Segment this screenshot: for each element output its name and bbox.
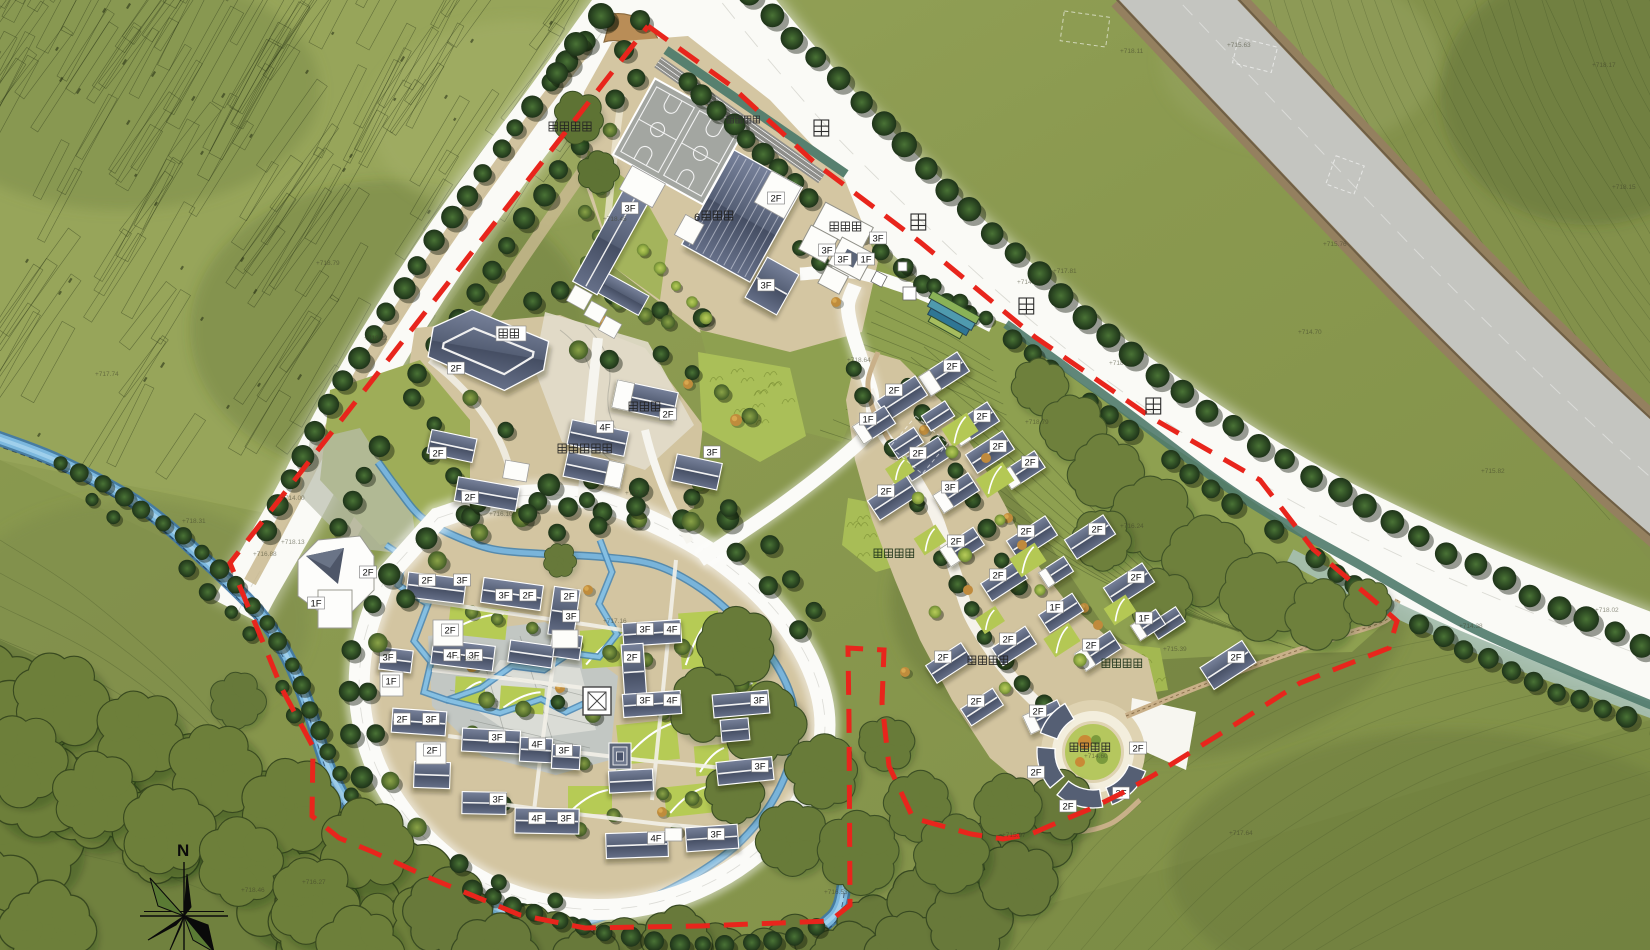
svg-text:+715.76: +715.76 xyxy=(1323,241,1347,248)
svg-text:2F: 2F xyxy=(937,652,948,663)
svg-text:2F: 2F xyxy=(396,714,407,725)
svg-text:2F: 2F xyxy=(464,492,475,503)
svg-text:3F: 3F xyxy=(944,482,955,493)
svg-text:2F: 2F xyxy=(976,411,987,422)
svg-text:+718.79: +718.79 xyxy=(1025,419,1049,426)
svg-text:2F: 2F xyxy=(362,567,373,578)
svg-text:4F: 4F xyxy=(531,813,542,824)
svg-text:+718.17: +718.17 xyxy=(1592,62,1616,69)
svg-text:+717.81: +717.81 xyxy=(1053,268,1077,275)
svg-text:2F: 2F xyxy=(1030,767,1041,778)
svg-text:2F: 2F xyxy=(880,486,891,497)
svg-text:3F: 3F xyxy=(565,611,576,622)
svg-text:+718.11: +718.11 xyxy=(1120,48,1144,55)
svg-text:4F: 4F xyxy=(666,624,677,635)
svg-text:+717.74: +717.74 xyxy=(95,371,119,378)
svg-text:2F: 2F xyxy=(563,591,574,602)
svg-text:2F: 2F xyxy=(450,363,461,374)
svg-text:2F: 2F xyxy=(522,590,533,601)
svg-text:+714.70: +714.70 xyxy=(1298,329,1322,336)
svg-text:2F: 2F xyxy=(432,448,443,459)
svg-text:2F: 2F xyxy=(946,361,957,372)
svg-text:+716.21: +716.21 xyxy=(456,655,480,662)
svg-text:2F: 2F xyxy=(912,448,923,459)
svg-text:4F: 4F xyxy=(666,695,677,706)
svg-text:3F: 3F xyxy=(760,280,771,291)
svg-text:2F: 2F xyxy=(1062,801,1073,812)
svg-text:+718.64: +718.64 xyxy=(847,357,871,364)
svg-text:3F: 3F xyxy=(753,695,764,706)
svg-text:2F: 2F xyxy=(1091,524,1102,535)
svg-text:3F: 3F xyxy=(558,745,569,756)
svg-text:1F: 1F xyxy=(310,598,321,609)
svg-text:+718.02: +718.02 xyxy=(1595,607,1619,614)
svg-text:2F: 2F xyxy=(1230,652,1241,663)
svg-text:+718.22: +718.22 xyxy=(364,335,388,342)
svg-text:N: N xyxy=(177,841,189,860)
svg-text:3F: 3F xyxy=(492,794,503,805)
svg-text:+714.00: +714.00 xyxy=(281,495,305,502)
svg-text:2F: 2F xyxy=(950,536,961,547)
svg-text:3F: 3F xyxy=(639,695,650,706)
svg-text:1F: 1F xyxy=(860,254,871,265)
svg-text:+716.88: +716.88 xyxy=(253,551,277,558)
svg-text:3F: 3F xyxy=(425,714,436,725)
svg-text:+718.46: +718.46 xyxy=(241,887,265,894)
svg-text:3F: 3F xyxy=(872,233,883,244)
svg-text:+718.31: +718.31 xyxy=(182,518,206,525)
svg-text:+717.16: +717.16 xyxy=(603,618,627,625)
svg-text:2F: 2F xyxy=(1024,457,1035,468)
svg-text:+715.39: +715.39 xyxy=(1163,646,1187,653)
svg-text:4F: 4F xyxy=(599,422,610,433)
svg-text:+718.15: +718.15 xyxy=(1612,184,1636,191)
svg-text:+717.38: +717.38 xyxy=(625,490,649,497)
svg-text:+716.27: +716.27 xyxy=(302,879,326,886)
svg-text:2F: 2F xyxy=(421,575,432,586)
svg-text:3F: 3F xyxy=(456,575,467,586)
svg-text:2F: 2F xyxy=(426,745,437,756)
svg-text:2F: 2F xyxy=(444,625,455,636)
svg-text:3F: 3F xyxy=(821,245,832,256)
svg-text:1F: 1F xyxy=(862,414,873,425)
svg-text:2F: 2F xyxy=(626,652,637,663)
svg-text:+715.97: +715.97 xyxy=(1002,832,1026,839)
svg-text:3F: 3F xyxy=(624,203,635,214)
svg-text:3F: 3F xyxy=(706,447,717,458)
svg-text:2F: 2F xyxy=(1132,743,1143,754)
svg-text:+718.79: +718.79 xyxy=(316,260,340,267)
svg-text:+716.10: +716.10 xyxy=(489,511,513,518)
svg-text:1F: 1F xyxy=(385,676,396,687)
svg-text:+718.13: +718.13 xyxy=(281,539,305,546)
svg-text:4F: 4F xyxy=(531,739,542,750)
svg-text:+716.24: +716.24 xyxy=(1120,523,1144,530)
svg-text:3F: 3F xyxy=(560,813,571,824)
svg-text:+714.44: +714.44 xyxy=(1017,279,1041,286)
svg-text:2F: 2F xyxy=(662,409,673,420)
svg-text:2F: 2F xyxy=(1032,706,1043,717)
svg-text:+715.82: +715.82 xyxy=(1481,468,1505,475)
svg-text:3F: 3F xyxy=(498,590,509,601)
svg-text:2F: 2F xyxy=(992,441,1003,452)
svg-text:3F: 3F xyxy=(837,254,848,265)
svg-text:2F: 2F xyxy=(1002,634,1013,645)
svg-text:+715.63: +715.63 xyxy=(1227,42,1251,49)
svg-text:1F: 1F xyxy=(1049,602,1060,613)
svg-text:2F: 2F xyxy=(1130,572,1141,583)
svg-text:2F: 2F xyxy=(1020,526,1031,537)
svg-text:1F: 1F xyxy=(1138,613,1149,624)
svg-text:+714.38: +714.38 xyxy=(1459,623,1483,630)
svg-text:2F: 2F xyxy=(770,193,781,204)
svg-text:3F: 3F xyxy=(491,732,502,743)
svg-text:+717.64: +717.64 xyxy=(1229,830,1253,837)
svg-text:6: 6 xyxy=(694,212,700,224)
svg-text:+718.45: +718.45 xyxy=(603,216,627,223)
svg-text:+714.60: +714.60 xyxy=(1084,753,1108,760)
svg-text:2F: 2F xyxy=(1085,640,1096,651)
svg-text:3F: 3F xyxy=(710,829,721,840)
svg-text:2F: 2F xyxy=(992,570,1003,581)
svg-text:4F: 4F xyxy=(650,833,661,844)
svg-text:3F: 3F xyxy=(754,761,765,772)
svg-text:3F: 3F xyxy=(639,624,650,635)
svg-text:2F: 2F xyxy=(970,696,981,707)
svg-text:+718.82: +718.82 xyxy=(1109,360,1133,367)
svg-text:+716.53: +716.53 xyxy=(824,889,848,896)
svg-text:2F: 2F xyxy=(888,385,899,396)
